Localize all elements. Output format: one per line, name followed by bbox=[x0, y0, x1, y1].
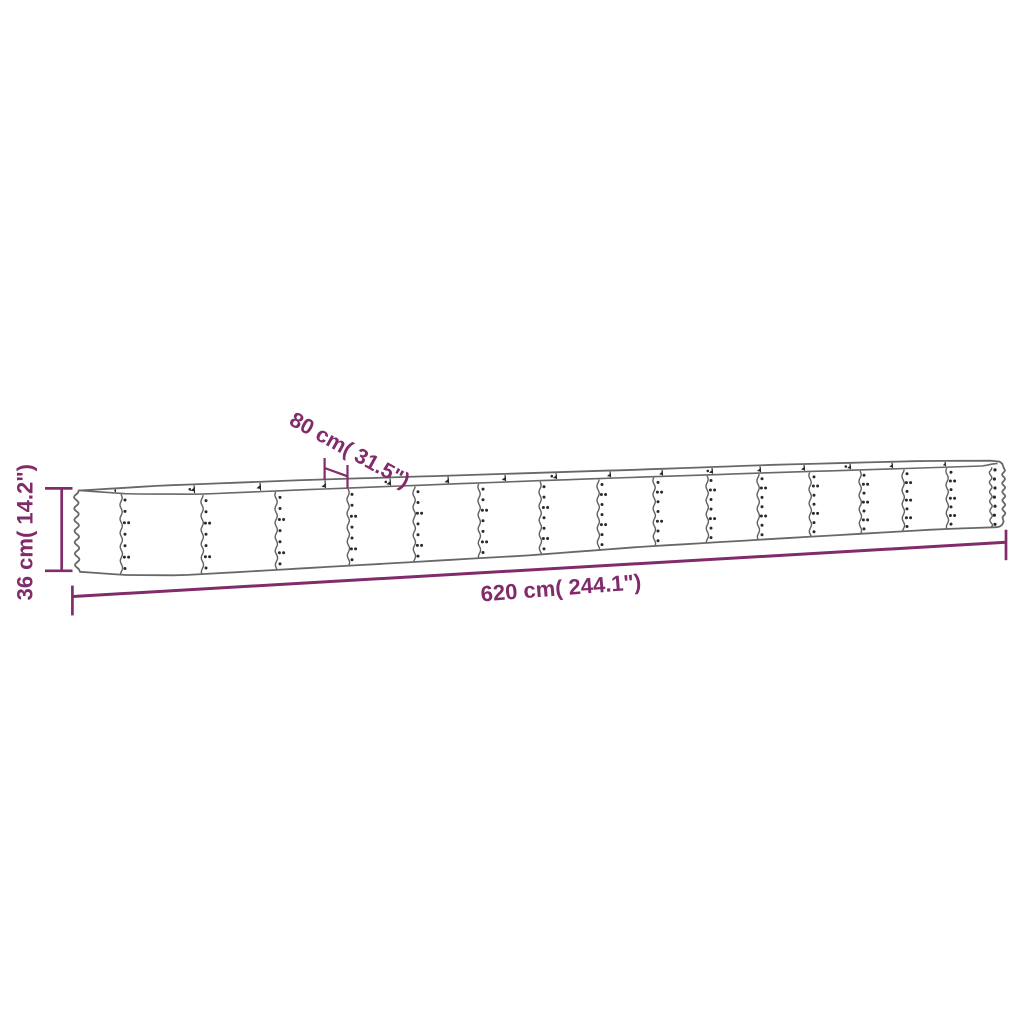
svg-text:36 cm( 14.2"): 36 cm( 14.2") bbox=[13, 464, 38, 600]
